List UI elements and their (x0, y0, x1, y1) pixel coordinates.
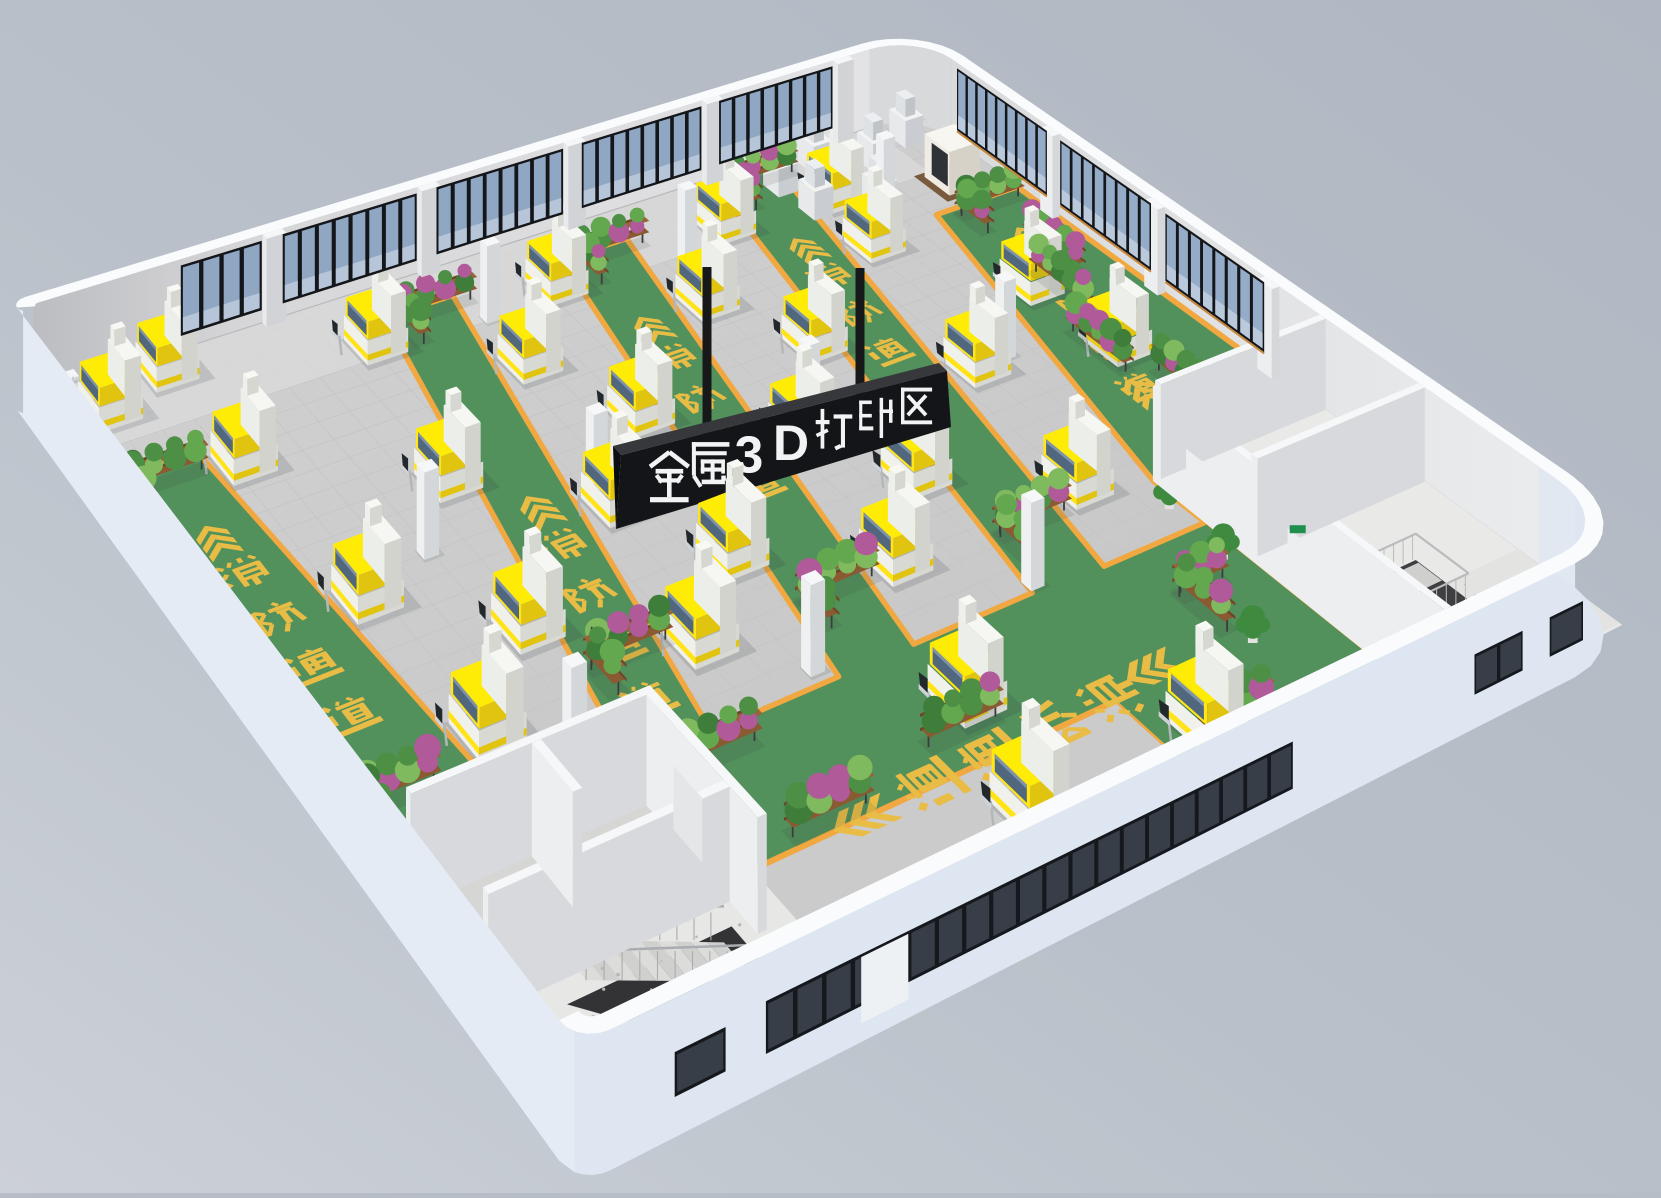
svg-text:D: D (773, 415, 809, 471)
